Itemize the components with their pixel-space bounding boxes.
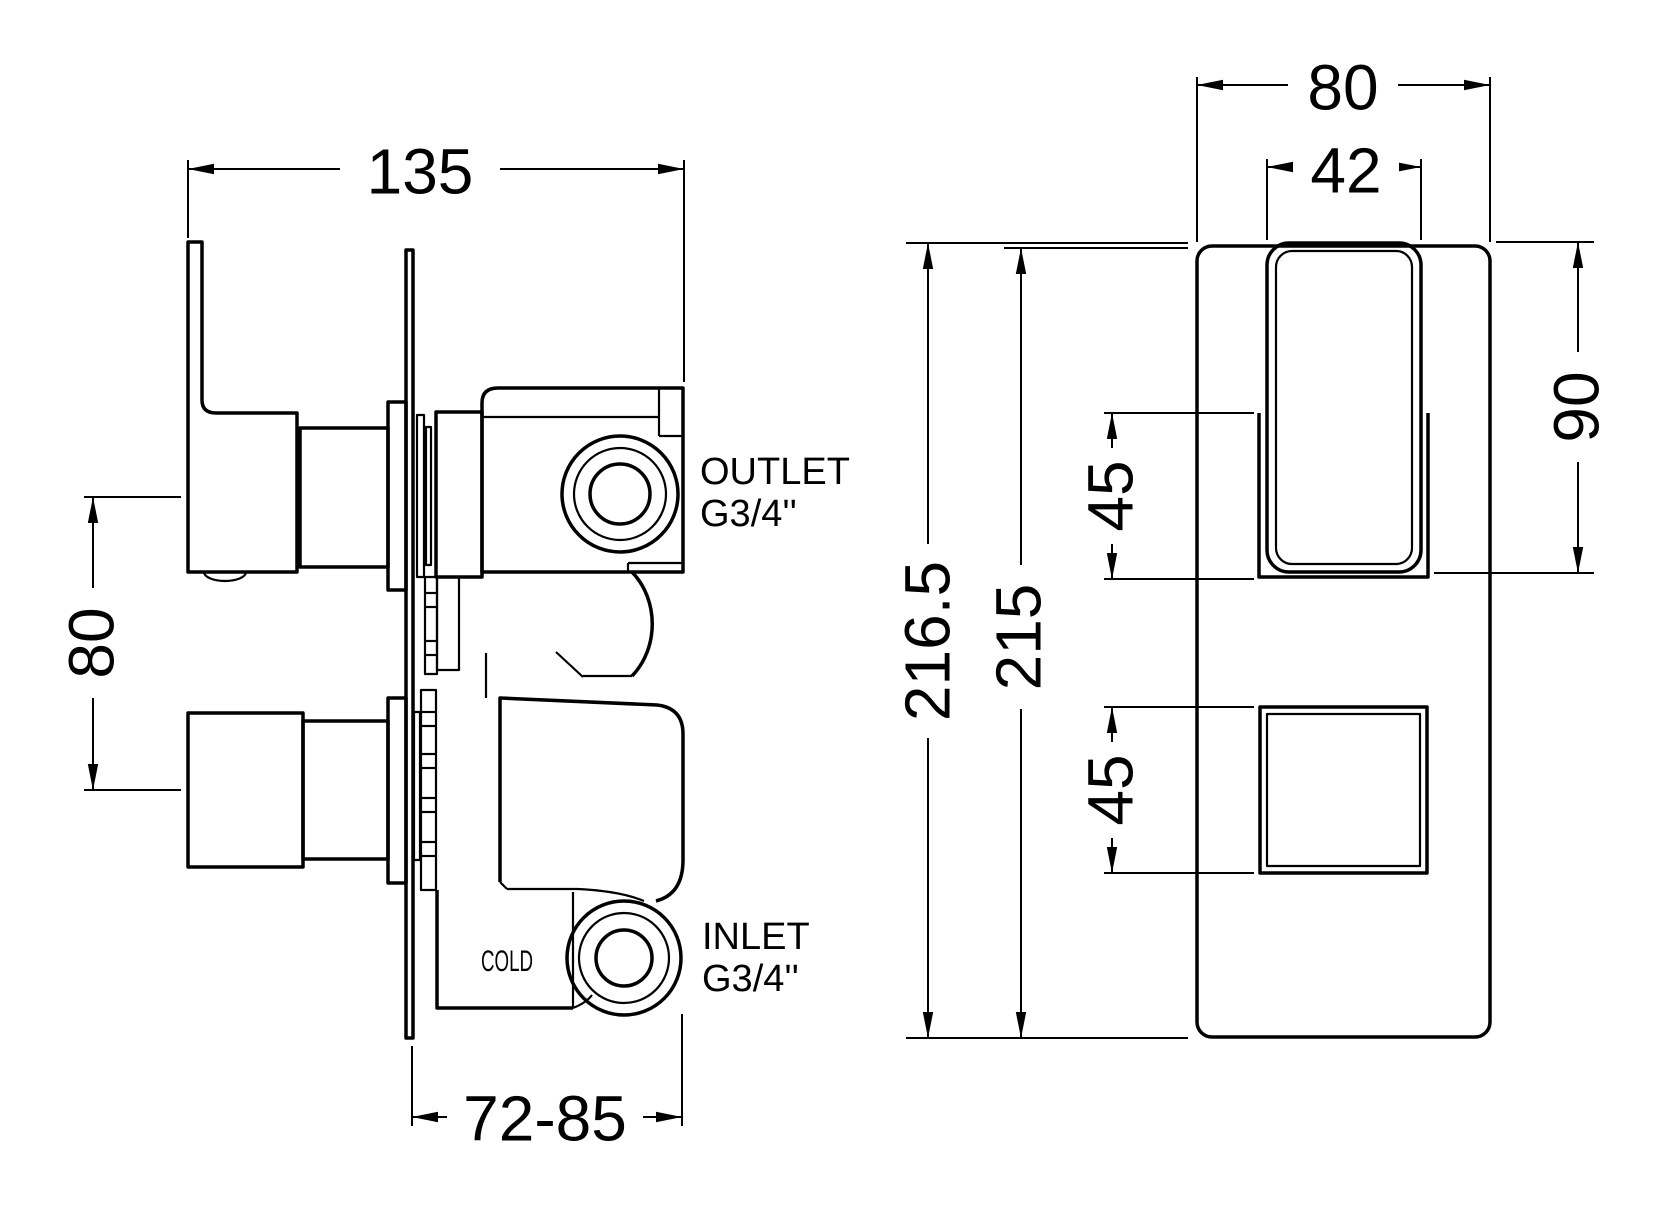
inlet-label: INLET G3/4'' [702, 916, 810, 1000]
svg-text:INLET: INLET [702, 916, 810, 958]
lower-thread-ticks [421, 712, 436, 856]
temperature-knob-side [188, 713, 303, 867]
lower-spacer-strip [414, 712, 420, 860]
upper-spacer-strip-a [417, 415, 424, 577]
lever-handle-front-outer [1267, 243, 1421, 572]
svg-text:G3/4'': G3/4'' [702, 958, 799, 1000]
cartridge-body [500, 698, 683, 882]
lower-escutcheon [388, 698, 406, 883]
inlet-port [567, 901, 681, 1015]
lever-handle-front-inner [1276, 251, 1412, 564]
dim-spacing-80: 80 [55, 497, 181, 790]
outlet-housing-tab [659, 388, 683, 436]
upper-spacer-block [436, 412, 482, 577]
upper-thread-block [437, 577, 459, 670]
dim-handle-offset-text: 45 [1074, 460, 1146, 531]
technical-drawing-canvas: 135 80 72-85 OUTLET G3/4'' INLET [0, 0, 1653, 1211]
dim-plate-height-text: 215 [982, 584, 1054, 691]
upper-spacer-strip-b [426, 427, 431, 565]
handle-recess-pocket [1259, 413, 1428, 577]
dim-knob-45: 45 [1074, 707, 1254, 873]
svg-text:OUTLET: OUTLET [700, 451, 850, 493]
dim-handle-height-90: 90 [1434, 242, 1612, 573]
temperature-knob-front-outer [1260, 707, 1427, 873]
wall-plate-front [1197, 246, 1490, 1037]
dim-handle-width-text: 42 [1310, 134, 1381, 206]
lower-threaded-nipple [421, 690, 436, 890]
dim-total-height-text: 216.5 [891, 561, 963, 721]
wall-plate-edge [406, 250, 413, 1038]
side-view: 135 80 72-85 OUTLET G3/4'' INLET [55, 135, 850, 1154]
dim-install-depth-text: 72-85 [463, 1082, 627, 1154]
chamber-diagonal [556, 652, 583, 677]
front-view: 80 42 216.5 215 [891, 51, 1612, 1038]
outlet-label: OUTLET G3/4'' [700, 451, 850, 535]
dim-install-depth: 72-85 [412, 1014, 682, 1154]
cold-label: COLD [481, 945, 533, 978]
outlet-port [562, 436, 678, 552]
dim-handle-width-42: 42 [1267, 134, 1421, 240]
dim-depth-135-text: 135 [367, 135, 474, 207]
dim-spacing-80-text: 80 [55, 607, 127, 678]
knob-stem [303, 721, 388, 859]
dim-plate-height-215: 215 [982, 248, 1188, 1038]
cartridge-foot [500, 882, 507, 889]
upper-thread-ticks [425, 593, 437, 655]
dim-plate-width-text: 80 [1307, 51, 1378, 123]
dim-depth-135: 135 [188, 135, 684, 382]
dim-handle-height-text: 90 [1540, 371, 1612, 442]
svg-text:G3/4'': G3/4'' [700, 493, 797, 535]
chamber-bulge [632, 572, 652, 676]
lever-handle-side [188, 242, 297, 572]
temperature-knob-front-inner [1267, 714, 1420, 866]
outlet-housing [482, 388, 683, 572]
dim-knob-text: 45 [1074, 754, 1146, 825]
upper-threaded-nipple [425, 577, 437, 674]
inlet-housing-top [507, 889, 644, 901]
cartridge-merge-curve [656, 860, 683, 901]
upper-escutcheon [388, 402, 406, 590]
drawing-svg: 135 80 72-85 OUTLET G3/4'' INLET [0, 0, 1653, 1211]
dim-handle-offset-45: 45 [1074, 413, 1254, 579]
lever-stem [300, 428, 388, 567]
